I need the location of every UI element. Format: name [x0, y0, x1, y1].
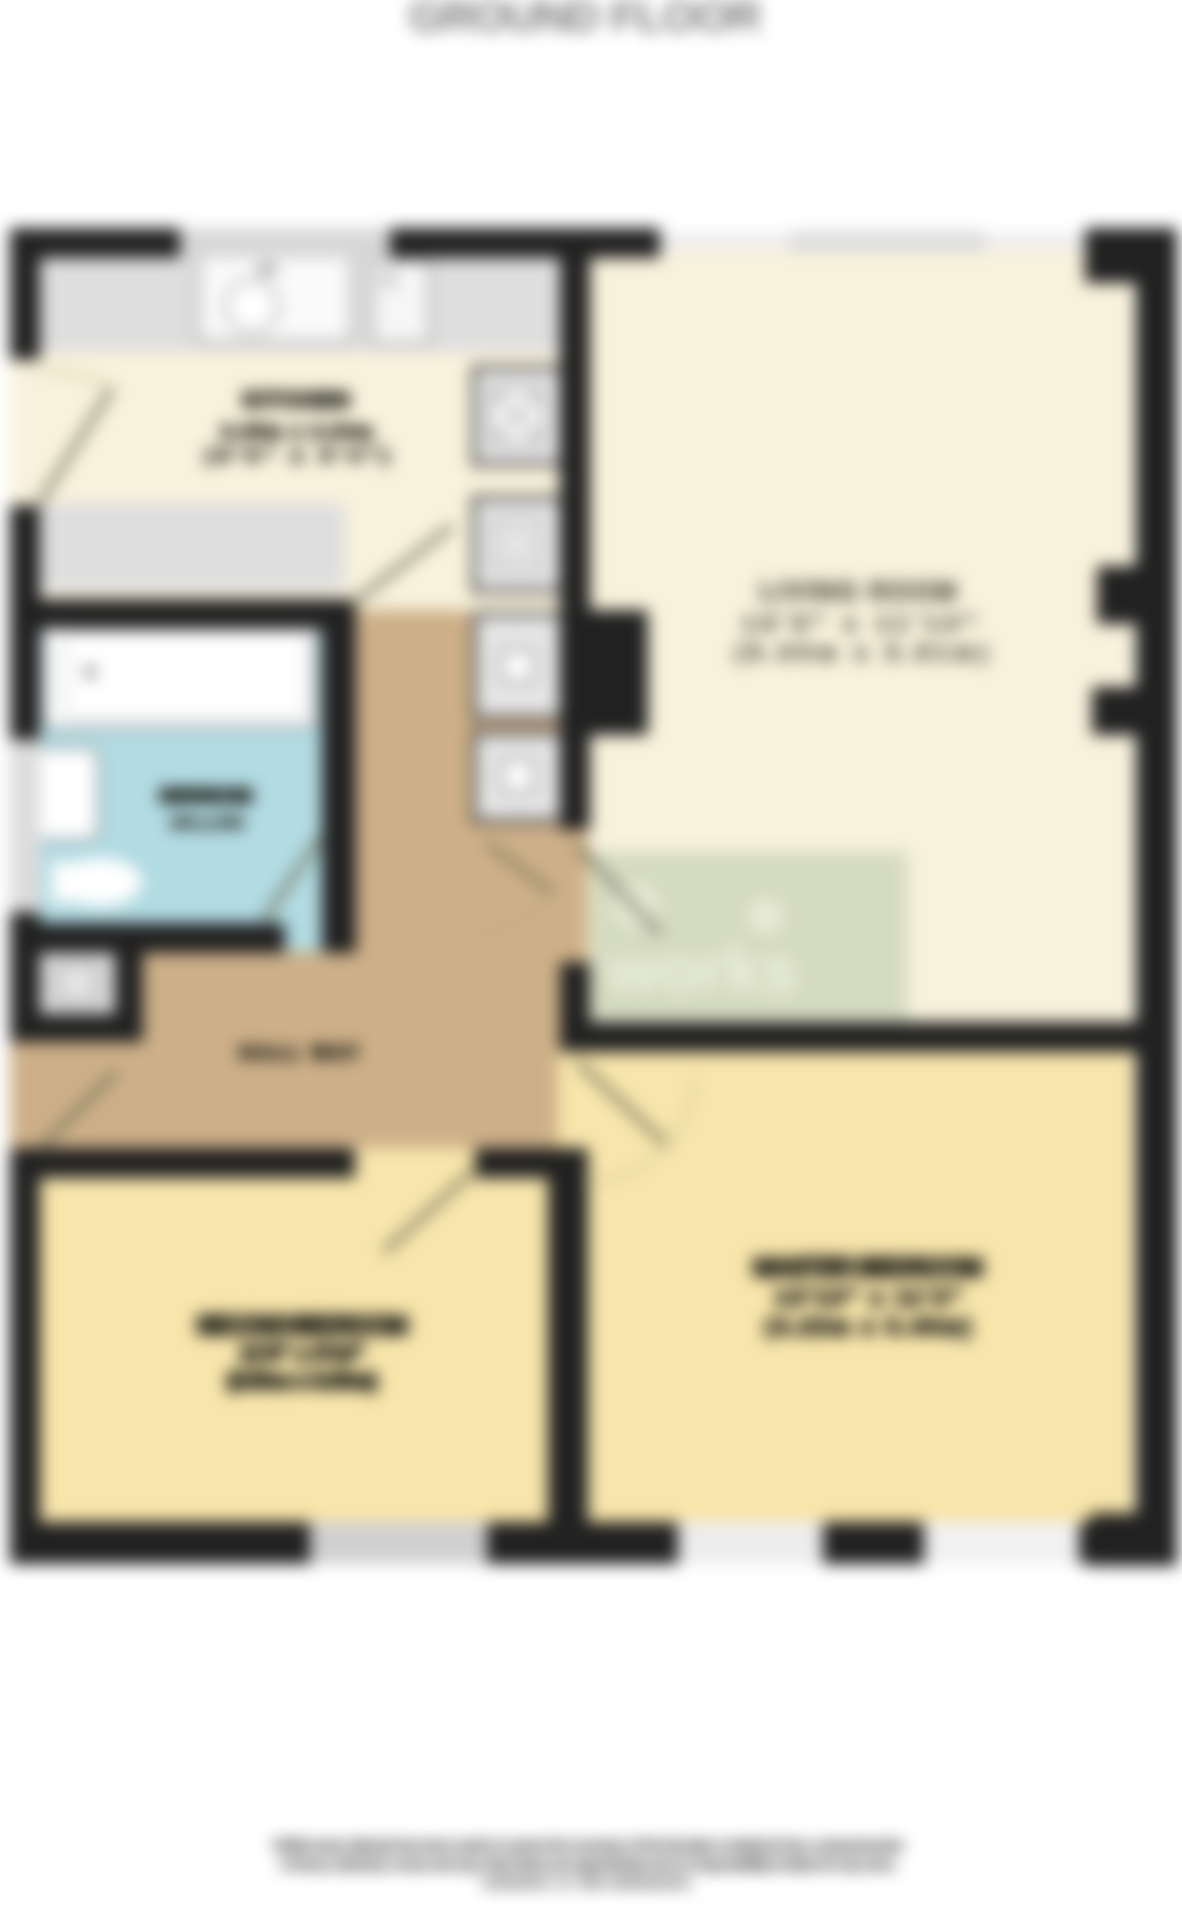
svg-text:Whilst every attempt has been: Whilst every attempt has been made to en…: [273, 1837, 903, 1853]
svg-text:of doors, windows, rooms and a: of doors, windows, rooms and any other i…: [281, 1856, 896, 1872]
svg-text:MASTER BEDROOM: MASTER BEDROOM: [753, 1252, 983, 1282]
svg-text:(3.51m x 3.00m): (3.51m x 3.00m): [227, 1368, 377, 1393]
svg-text:GROUND FLOOR: GROUND FLOOR: [409, 0, 761, 41]
svg-text:2.95m x 2.54m: 2.95m x 2.54m: [222, 422, 372, 441]
svg-text:6'8 x 5'6: 6'8 x 5'6: [172, 815, 242, 831]
svg-text:(4.22m x 3.40m): (4.22m x 3.40m): [766, 1314, 971, 1339]
svg-text:BATHROOM: BATHROOM: [160, 786, 252, 806]
svg-text:omission or mis-statement.: omission or mis-statement.: [483, 1874, 693, 1890]
svg-text:works: works: [607, 932, 799, 1006]
svg-text:SECOND BEDROOM: SECOND BEDROOM: [196, 1310, 408, 1340]
svg-text:11'6" x 9'10": 11'6" x 9'10": [240, 1341, 365, 1366]
